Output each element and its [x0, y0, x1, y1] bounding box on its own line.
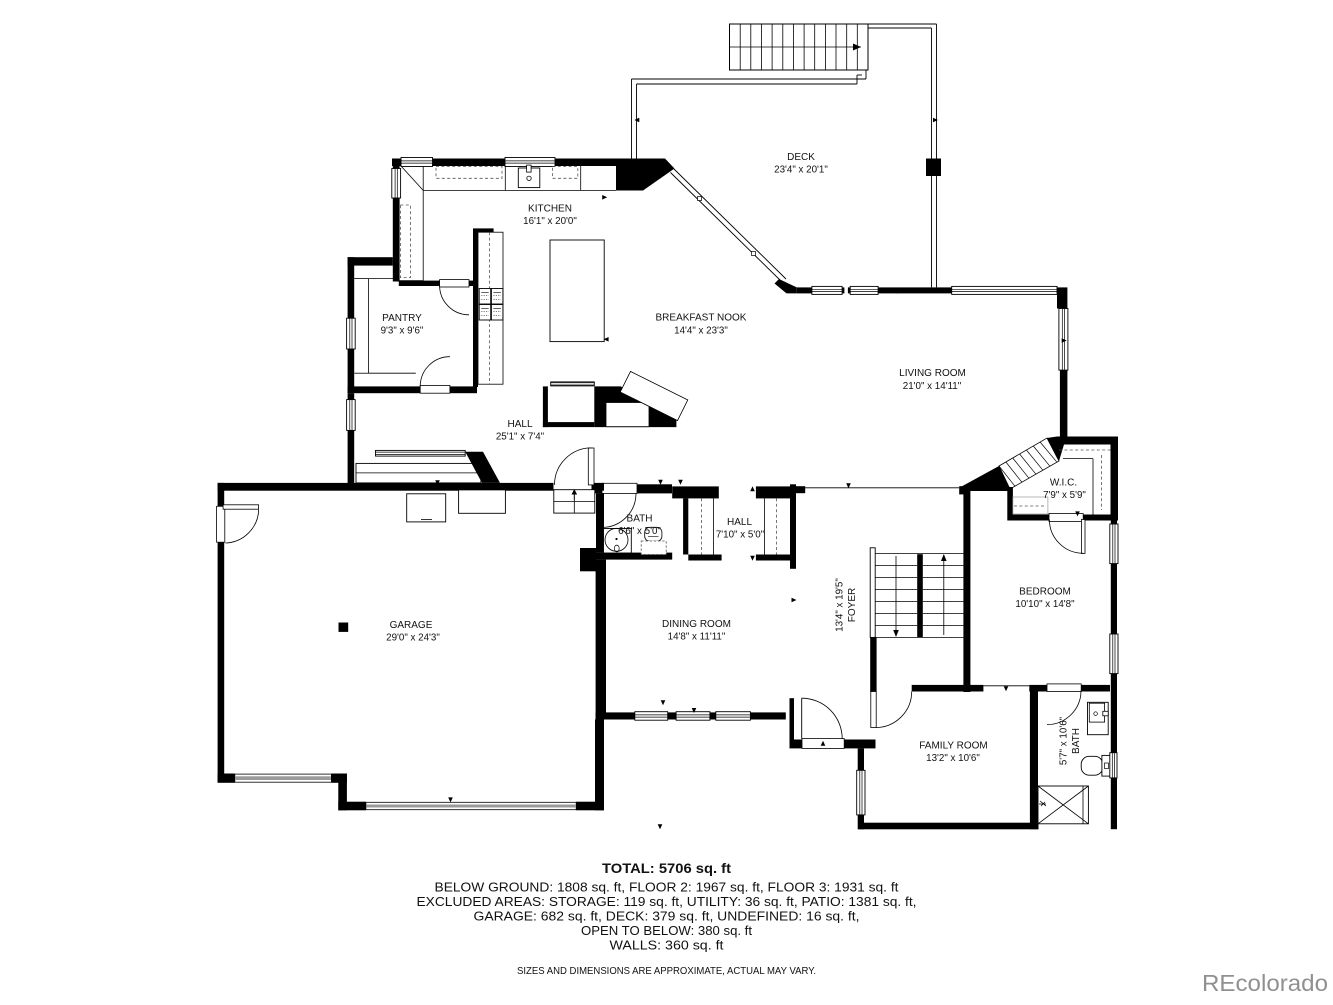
- svg-text:BELOW GROUND: 1808 sq. ft, FLO: BELOW GROUND: 1808 sq. ft, FLOOR 2: 1967…: [435, 880, 899, 895]
- svg-text:FAMILY ROOM: FAMILY ROOM: [919, 741, 988, 752]
- svg-text:7'10" x 5'0": 7'10" x 5'0": [716, 530, 765, 541]
- svg-text:BEDROOM: BEDROOM: [1019, 587, 1071, 598]
- svg-text:REcolorado: REcolorado: [1202, 970, 1328, 996]
- svg-text:13'2" x 10'6": 13'2" x 10'6": [926, 753, 980, 764]
- svg-text:14'4" x 23'3": 14'4" x 23'3": [674, 325, 728, 336]
- svg-text:KITCHEN: KITCHEN: [528, 204, 572, 215]
- svg-text:BATH: BATH: [627, 514, 653, 525]
- svg-text:13'4" x 19'5": 13'4" x 19'5": [835, 578, 846, 632]
- svg-text:21'0" x 14'11": 21'0" x 14'11": [903, 381, 962, 392]
- svg-text:TOTAL: 5706 sq. ft: TOTAL: 5706 sq. ft: [602, 861, 732, 876]
- svg-text:23'4" x 20'1": 23'4" x 20'1": [774, 165, 828, 176]
- svg-text:WALLS: 360 sq. ft: WALLS: 360 sq. ft: [610, 938, 724, 953]
- svg-text:7'9" x 5'9": 7'9" x 5'9": [1043, 490, 1086, 501]
- svg-text:DINING ROOM: DINING ROOM: [662, 619, 731, 630]
- svg-text:25'1" x 7'4": 25'1" x 7'4": [496, 432, 545, 443]
- svg-text:9'3" x 9'6": 9'3" x 9'6": [381, 326, 424, 337]
- svg-text:HALL: HALL: [507, 419, 532, 430]
- svg-text:GARAGE: GARAGE: [390, 620, 433, 631]
- svg-text:5'7" x 10'6": 5'7" x 10'6": [1058, 716, 1069, 765]
- svg-text:LIVING ROOM: LIVING ROOM: [899, 368, 966, 379]
- svg-text:BREAKFAST NOOK: BREAKFAST NOOK: [656, 313, 747, 324]
- svg-text:10'10" x 14'8": 10'10" x 14'8": [1015, 599, 1075, 610]
- svg-text:HALL: HALL: [727, 517, 752, 528]
- svg-text:OPEN TO BELOW: 380 sq. ft: OPEN TO BELOW: 380 sq. ft: [581, 923, 752, 938]
- svg-text:SIZES AND DIMENSIONS ARE APPRO: SIZES AND DIMENSIONS ARE APPROXIMATE, AC…: [517, 965, 816, 977]
- svg-text:29'0" x 24'3": 29'0" x 24'3": [386, 633, 440, 644]
- svg-text:GARAGE: 682 sq. ft, DECK: 379: GARAGE: 682 sq. ft, DECK: 379 sq. ft, UN…: [474, 909, 860, 924]
- svg-text:DECK: DECK: [787, 152, 815, 163]
- svg-text:EXCLUDED AREAS: STORAGE: 119 s: EXCLUDED AREAS: STORAGE: 119 sq. ft, UTI…: [417, 894, 917, 909]
- svg-text:FOYER: FOYER: [847, 588, 858, 622]
- svg-text:PANTRY: PANTRY: [382, 313, 422, 324]
- svg-text:W.I.C.: W.I.C.: [1050, 478, 1077, 489]
- svg-text:16'1" x 20'0": 16'1" x 20'0": [523, 216, 577, 227]
- svg-text:6'6" x 5'0": 6'6" x 5'0": [618, 526, 661, 537]
- svg-text:14'8" x 11'11": 14'8" x 11'11": [668, 632, 726, 643]
- svg-text:BATH: BATH: [1071, 728, 1082, 754]
